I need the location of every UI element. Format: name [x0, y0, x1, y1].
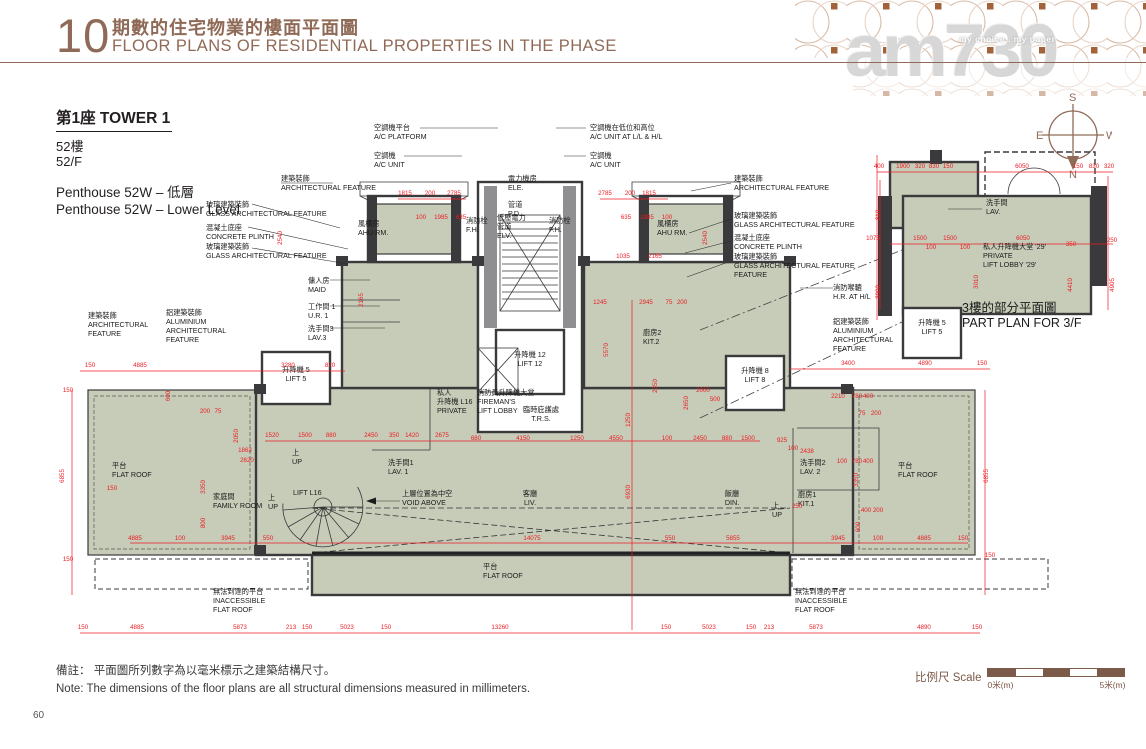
dimension: 830	[1089, 163, 1100, 170]
dimension: 680	[471, 435, 482, 442]
dimension: 6855	[983, 469, 990, 483]
dimension: 5855	[726, 535, 740, 542]
note-zh: 備註： 平面圖所列數字為以毫米標示之建築結構尺寸。	[56, 663, 530, 681]
dimension: 213	[286, 624, 297, 631]
dimension: 2540	[277, 231, 284, 245]
dimension: 635	[621, 214, 632, 221]
dimension: 150	[107, 485, 118, 492]
dimension: 3350	[853, 473, 860, 487]
concrete-plinth-right-label: 混凝土底座CONCRETE PLINTH	[734, 233, 802, 251]
dimension: 100	[788, 445, 799, 452]
dimension: 830	[929, 163, 940, 170]
dimension: 5023	[702, 624, 716, 631]
aluminium-feature-left-label: 鋁建築裝飾ALUMINIUMARCHITECTURALFEATURE	[166, 308, 226, 344]
dimension: 150	[958, 535, 969, 542]
scale-start: 0米(m)	[987, 679, 1013, 691]
dimension: 5873	[809, 624, 823, 631]
dimension: 150	[302, 624, 313, 631]
dimension: 100	[960, 244, 971, 251]
maid-room-label: 傭人房MAID	[308, 276, 330, 294]
dimension: 6930	[625, 485, 632, 499]
dimension: 400	[874, 163, 885, 170]
dimension: 4885	[130, 624, 144, 631]
dimension: 3280	[281, 362, 295, 369]
concrete-plinth-left-label: 混凝土底座CONCRETE PLINTH	[206, 223, 274, 241]
dimension: 2785	[447, 190, 461, 197]
dimension: 350	[389, 432, 400, 439]
dimension: 550	[263, 535, 274, 542]
dimension: 75	[215, 408, 222, 415]
arch-feature-left-mid-label: 建築裝飾ARCHITECTURALFEATURE	[88, 311, 148, 338]
scale-bar: 比例尺 Scale 0米(m) 5米(m)	[915, 668, 1125, 691]
dimension: 2165	[358, 293, 365, 307]
dimension: 3900	[875, 285, 882, 299]
dimension: 600	[165, 390, 172, 401]
dimension: 1985	[434, 214, 448, 221]
dimension: 5873	[233, 624, 247, 631]
dimension: 200	[873, 507, 884, 514]
dimension: 400	[863, 393, 874, 400]
dimension: 150	[985, 552, 996, 559]
dimension: 4890	[918, 360, 932, 367]
dimension: 925	[777, 437, 788, 444]
floor-plan: 空調機平台A/C PLATFORM空調機A/C UNIT空調機在低位和高位A/C…	[0, 0, 1146, 749]
dimension: 5570	[603, 343, 610, 357]
void-above-label: 上層位置為中空VOID ABOVE	[402, 489, 452, 507]
dimension: 150	[63, 556, 74, 563]
dimension: 200	[625, 190, 636, 197]
dimension: 2350	[652, 379, 659, 393]
dimension: 880	[722, 435, 733, 442]
dimension: 810	[875, 209, 882, 220]
dimension: 1500	[741, 435, 755, 442]
dimension: 1815	[642, 190, 656, 197]
dimension: 1520	[265, 432, 279, 439]
dimension: 213	[764, 624, 775, 631]
dimension: 2165	[648, 253, 662, 260]
dimension: 2785	[598, 190, 612, 197]
lavatory-3-label: 洗手間3LAV.3	[308, 324, 334, 342]
dimension: 1500	[913, 235, 927, 242]
dimension: 500	[710, 396, 721, 403]
dimension: 350	[1066, 241, 1077, 248]
dimension: 2540	[702, 231, 709, 245]
dimension: 150	[943, 163, 954, 170]
note-en: Note: The dimensions of the floor plans …	[56, 681, 530, 699]
dimension: 6050	[1016, 235, 1030, 242]
dimension: 200	[677, 299, 688, 306]
dimension: 1035	[616, 253, 630, 260]
dimension: 200	[425, 190, 436, 197]
ac-platform-label: 空調機平台A/C PLATFORM	[374, 123, 427, 141]
dimension: 150	[661, 624, 672, 631]
kitchen-2-label: 廚房2KIT.2	[643, 328, 661, 346]
glass-feature-left2-label: 玻璃建築裝飾GLASS ARCHITECTURAL FEATURE	[206, 242, 327, 260]
brochure-page: am730 my choice . my paper 10 期數的住宅物業的樓面…	[0, 0, 1146, 749]
page-number: 60	[33, 710, 44, 721]
dimension: 3350	[200, 480, 207, 494]
dimension: 4905	[1109, 278, 1116, 292]
dimension: 1420	[405, 432, 419, 439]
dimension: 150	[381, 624, 392, 631]
scale-segments	[987, 668, 1125, 677]
dimension: 250	[1107, 237, 1118, 244]
dimension: 150	[972, 624, 983, 631]
dimension: 2945	[639, 299, 653, 306]
ac-unit-left-label: 空調機A/C UNIT	[374, 151, 405, 169]
dining-room-label: 飯廳DIN.	[725, 489, 739, 507]
dimension: 4150	[516, 435, 530, 442]
dimension: 2675	[435, 432, 449, 439]
dimension: 3945	[221, 535, 235, 542]
lift-l16-stair-label: LIFT L16	[293, 488, 322, 497]
dimension: 3945	[831, 535, 845, 542]
dimension: 320	[1104, 163, 1115, 170]
dimension: 1250	[625, 413, 632, 427]
dimension: 2650	[683, 396, 690, 410]
dimension: 2438	[800, 448, 814, 455]
dimension: 1985	[640, 214, 654, 221]
arch-feature-right-top-label: 建築裝飾ARCHITECTURAL FEATURE	[734, 174, 829, 192]
part-plan-lift-5-label: 升降機 5LIFT 5	[918, 318, 946, 336]
lift-8-label: 升降機 8LIFT 8	[741, 366, 769, 384]
dimension: 3400	[841, 360, 855, 367]
dimension: 13260	[491, 624, 509, 631]
dimension: 100	[662, 214, 673, 221]
dimension: 150	[1073, 163, 1084, 170]
dimension: 4550	[609, 435, 623, 442]
dimension: 4885	[128, 535, 142, 542]
dimension: 4885	[917, 535, 931, 542]
dimension: 550	[665, 535, 676, 542]
dimension: 880	[326, 432, 337, 439]
dimension: 1500	[943, 235, 957, 242]
dimension: 100	[873, 535, 884, 542]
hose-reel-label: 消防喉轆H.R. AT H/L	[833, 283, 871, 301]
dimension: 14075	[523, 535, 541, 542]
scale-label: 比例尺 Scale	[915, 669, 981, 685]
dimension: 75	[666, 299, 673, 306]
dimension: 1900	[896, 163, 910, 170]
dimension: 1500	[298, 432, 312, 439]
dimension: 780	[852, 458, 863, 465]
ac-unit-right-label: 空調機A/C UNIT	[590, 151, 621, 169]
dimension: 6050	[1015, 163, 1029, 170]
dimension: 100	[416, 214, 427, 221]
dimension: 1815	[398, 190, 412, 197]
dimension: 2450	[693, 435, 707, 442]
dimension: 2620	[240, 457, 254, 464]
notes: 備註： 平面圖所列數字為以毫米標示之建築結構尺寸。 Note: The dime…	[56, 663, 530, 699]
dimension: 2050	[233, 429, 240, 443]
dimension: 4890	[917, 624, 931, 631]
dimension: 2000	[696, 387, 710, 394]
dimension: 6855	[59, 469, 66, 483]
dimension: 200	[200, 408, 211, 415]
dimension: 780	[852, 393, 863, 400]
dimension: 635	[456, 214, 467, 221]
dimension: 800	[200, 517, 207, 528]
dimension: 320	[915, 163, 926, 170]
ac-unit-llhl-label: 空調機在低位和高位A/C UNIT AT L/L & H/L	[590, 123, 662, 141]
aluminium-feature-right-label: 鋁建築裝飾ALUMINIUMARCHITECTURALFEATURE	[833, 317, 893, 353]
dimension: 150	[746, 624, 757, 631]
dimension: 600	[855, 521, 862, 532]
dimension: 150	[63, 387, 74, 394]
dimension: 150	[85, 362, 96, 369]
dimension: 1245	[593, 299, 607, 306]
lift-12-label: 升降機 12LIFT 12	[514, 350, 546, 368]
dimension: 100	[175, 535, 186, 542]
dimension: 75	[859, 410, 866, 417]
dimension: 3010	[973, 275, 980, 289]
dimension: 2450	[364, 432, 378, 439]
inaccessible-flat-roof-left-label: 無法到達的平台INACCESSIBLEFLAT ROOF	[213, 587, 266, 614]
inaccessible-flat-roof-right-label: 無法到達的平台INACCESSIBLEFLAT ROOF	[795, 587, 848, 614]
dimension: 1250	[570, 435, 584, 442]
glass-feature-left-label: 玻璃建築裝飾GLASS ARCHITECTURAL FEATURE	[206, 200, 327, 218]
dimension: 150	[977, 360, 988, 367]
dimension: 400	[861, 507, 872, 514]
dimension: 200	[871, 410, 882, 417]
dimension: 400	[863, 458, 874, 465]
dimension: 4410	[1067, 278, 1074, 292]
dimension: 150	[78, 624, 89, 631]
dimension: 1863	[238, 447, 252, 454]
arch-feature-left-top-label: 建築裝飾ARCHITECTURAL FEATURE	[281, 174, 376, 192]
dimension: 4885	[133, 362, 147, 369]
dimension: 100	[662, 435, 673, 442]
dimension: 100	[837, 458, 848, 465]
dimension: 1075	[866, 235, 880, 242]
utility-room-1-label: 工作間 1U.R. 1	[308, 302, 336, 320]
dimension: 5023	[340, 624, 354, 631]
living-room-label: 客廳LIV.	[523, 489, 537, 507]
dimension: 250	[792, 503, 803, 510]
dimension: 2210	[831, 393, 845, 400]
dimension: 100	[926, 244, 937, 251]
dimension: 820	[325, 362, 336, 369]
scale-end: 5米(m)	[1099, 679, 1125, 691]
glass-feature-right-label: 玻璃建築裝飾GLASS ARCHITECTURAL FEATURE	[734, 211, 855, 229]
